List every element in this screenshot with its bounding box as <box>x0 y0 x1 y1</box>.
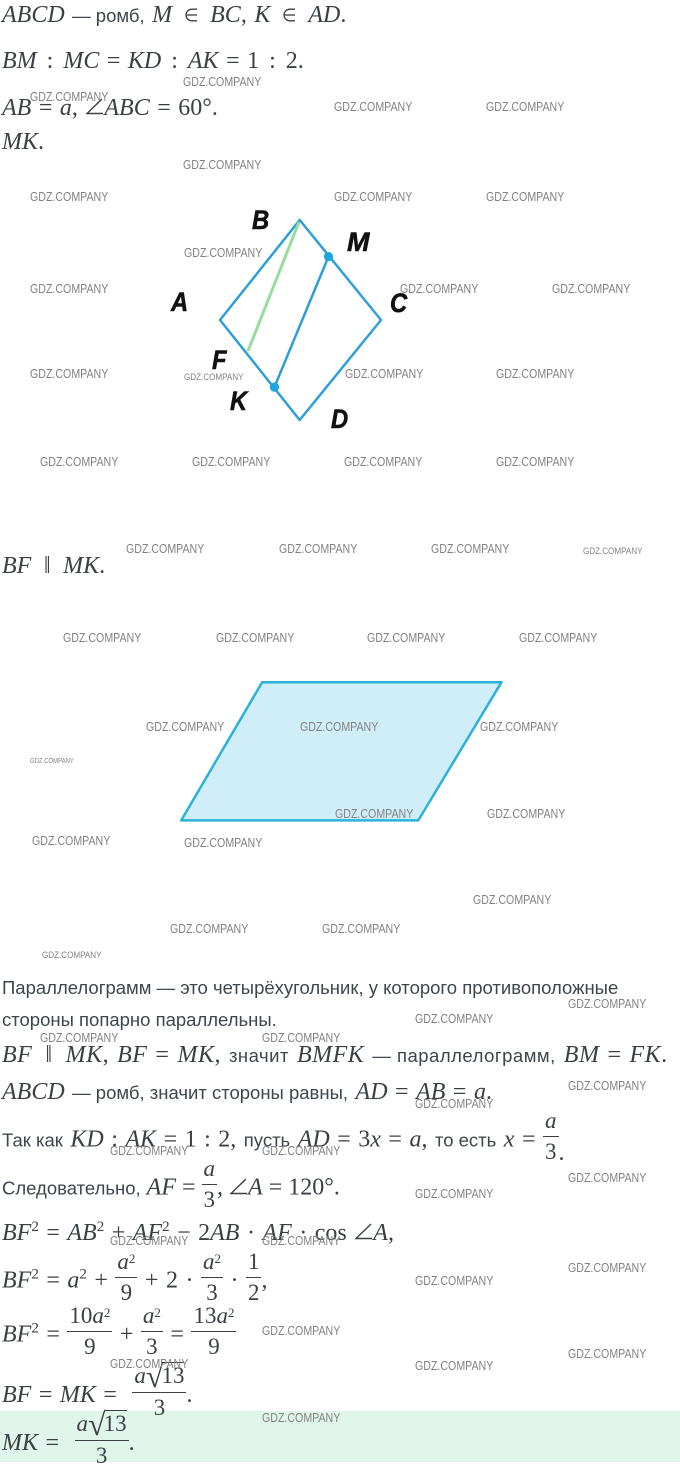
svg-text:M: M <box>347 227 370 257</box>
svg-text:K: K <box>230 387 249 417</box>
svg-text:B: B <box>252 206 269 236</box>
svg-text:D: D <box>331 405 348 435</box>
svg-text:A: A <box>170 288 188 318</box>
